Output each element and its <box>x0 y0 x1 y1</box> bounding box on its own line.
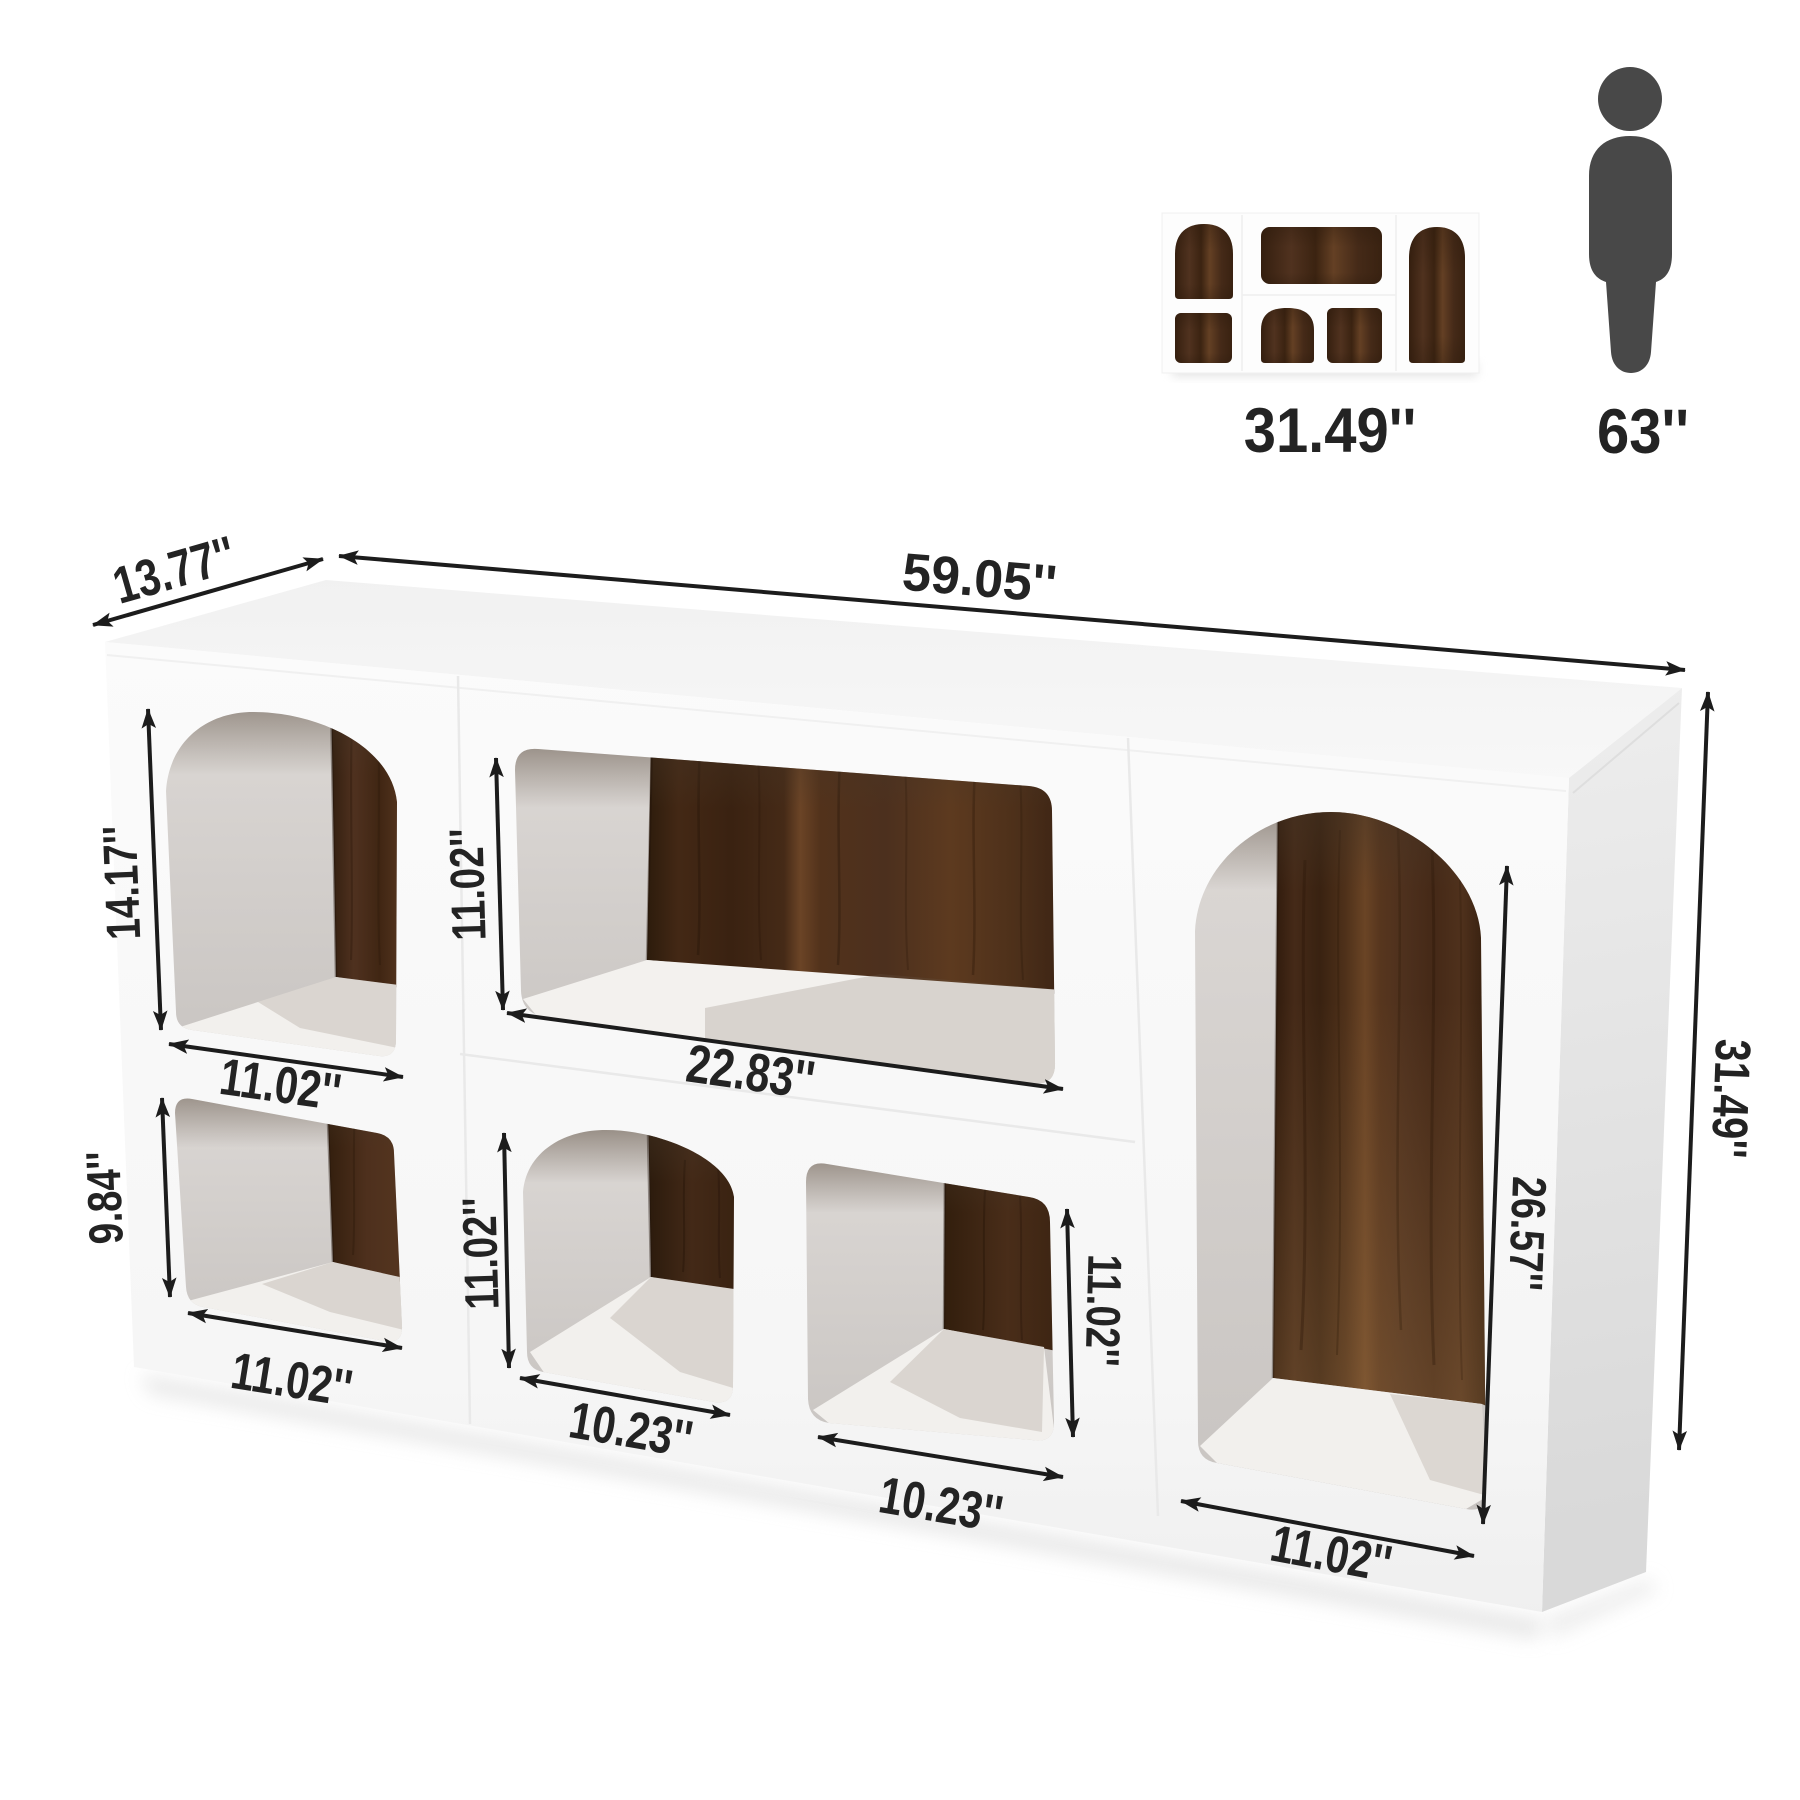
svg-text:11.02'': 11.02'' <box>453 1197 509 1311</box>
svg-text:11.02'': 11.02'' <box>440 828 496 942</box>
svg-text:11.02'': 11.02'' <box>1074 1254 1130 1368</box>
svg-text:26.57'': 26.57'' <box>1498 1175 1555 1291</box>
svg-text:14.17'': 14.17'' <box>94 824 152 940</box>
svg-text:31.49'': 31.49'' <box>1701 1038 1762 1159</box>
svg-text:31.49'': 31.49'' <box>1244 395 1417 466</box>
svg-text:63'': 63'' <box>1597 396 1689 467</box>
svg-text:9.84'': 9.84'' <box>77 1150 134 1245</box>
